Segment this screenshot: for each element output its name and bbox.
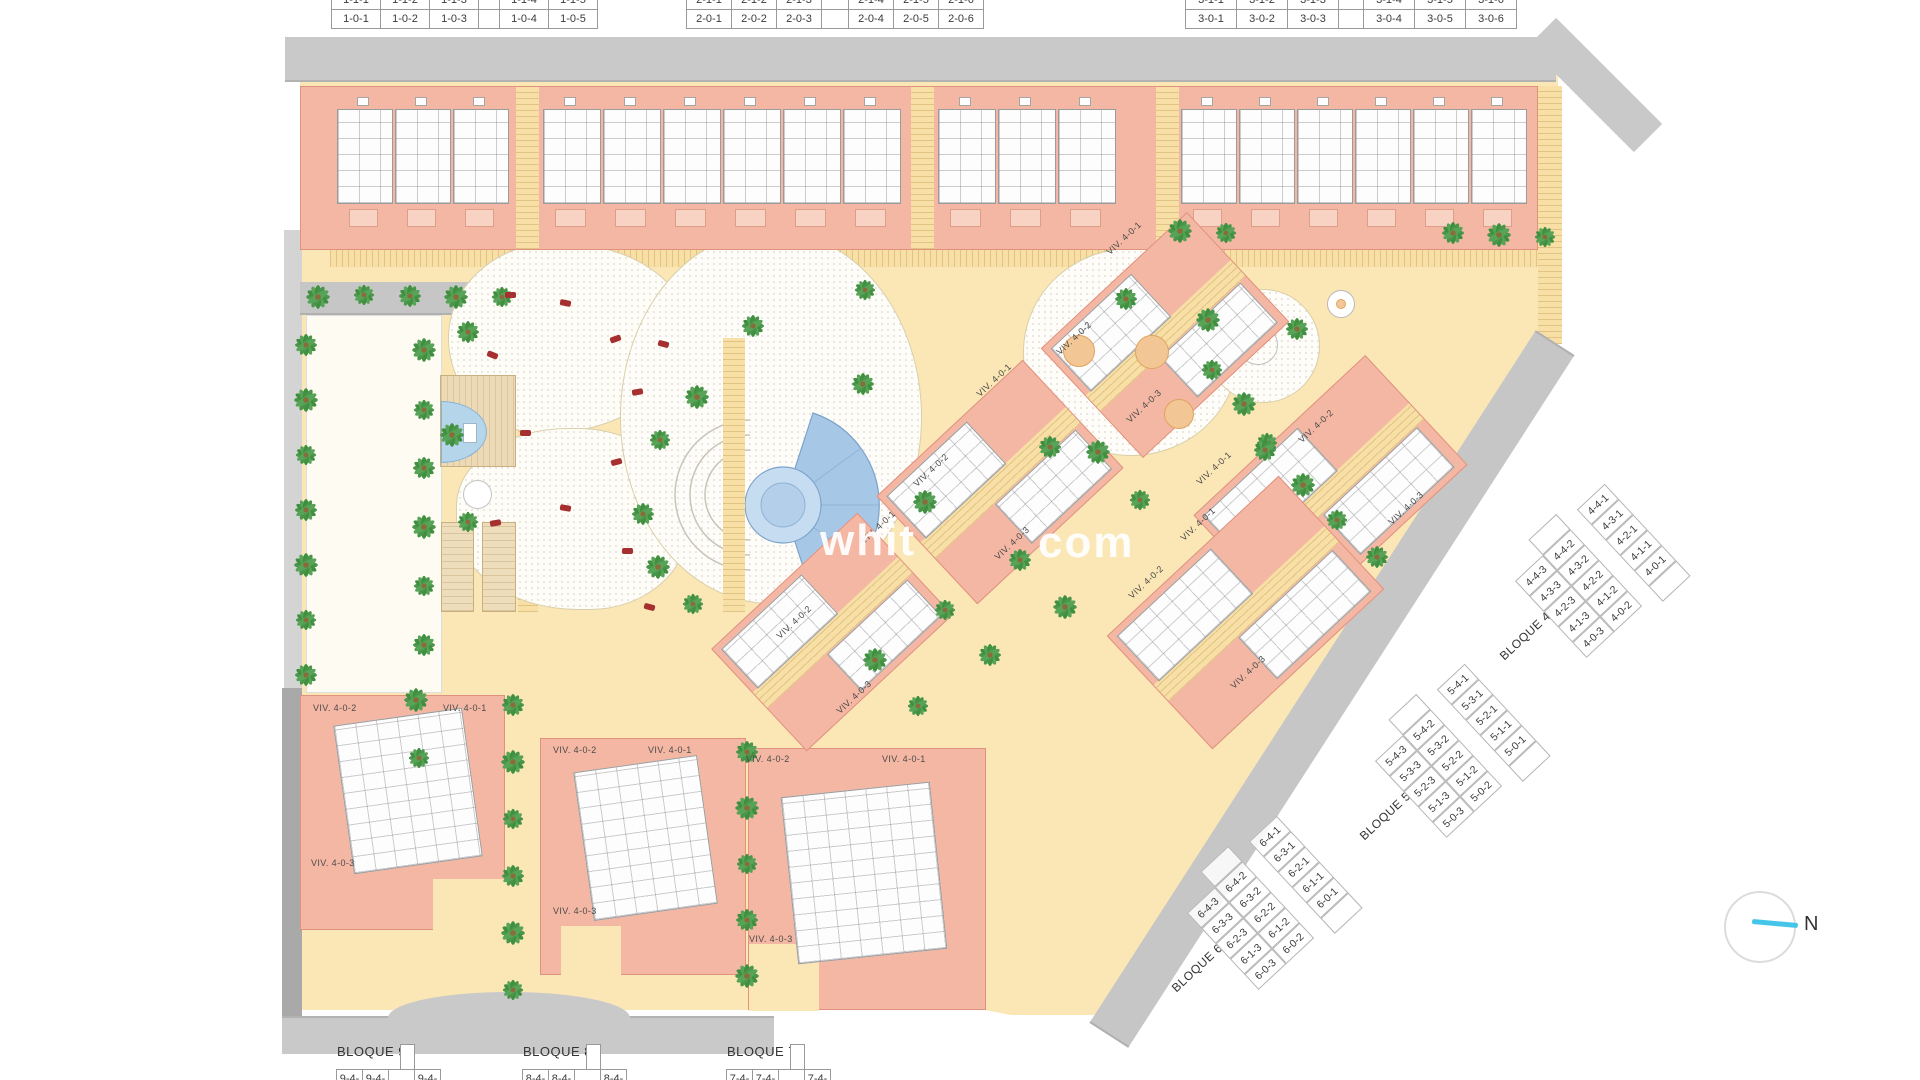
dwelling-label: VIV. 4-0-1 bbox=[443, 703, 487, 713]
unit-number-cell: 1-0-1 bbox=[331, 9, 381, 29]
bloque-diagonal-table: BLOQUE 55-4-35-4-25-4-15-3-35-3-25-3-15-… bbox=[1333, 664, 1568, 895]
table-row: 3-0-13-0-23-0-33-0-43-0-53-0-6 bbox=[1186, 10, 1517, 29]
palm-tree-icon bbox=[648, 428, 672, 452]
unit-terrace bbox=[1070, 209, 1101, 227]
unit-ac-box bbox=[744, 97, 756, 106]
palm-tree-icon bbox=[1533, 225, 1557, 249]
palm-tree-icon bbox=[1037, 434, 1063, 460]
palm-tree-icon bbox=[410, 513, 438, 541]
palm-tree-icon bbox=[402, 686, 430, 714]
courtyard-sand bbox=[433, 879, 506, 931]
unit-ac-box bbox=[959, 97, 971, 106]
palm-tree-icon bbox=[681, 592, 705, 616]
palm-tree-icon bbox=[1200, 358, 1224, 382]
apartment-unit-plan bbox=[333, 708, 483, 875]
table-row: 2-0-12-0-22-0-32-0-42-0-52-0-6 bbox=[687, 10, 984, 29]
palm-tree-icon bbox=[1214, 221, 1238, 245]
unit-terrace bbox=[407, 209, 437, 227]
palm-tree-icon bbox=[861, 646, 889, 674]
palm-tree-icon bbox=[735, 852, 759, 876]
apartment-unit-plan bbox=[395, 109, 451, 204]
unit-terrace bbox=[675, 209, 706, 227]
palm-tree-icon bbox=[292, 551, 320, 579]
dwelling-label: VIV. 4-0-2 bbox=[313, 703, 357, 713]
unit-number-cell: 2-0-3 bbox=[776, 9, 822, 29]
compass-circle bbox=[1724, 891, 1796, 963]
apartment-unit-plan bbox=[1413, 109, 1469, 204]
palm-tree-icon bbox=[1364, 544, 1390, 570]
palm-tree-icon bbox=[644, 553, 672, 581]
palm-tree-icon bbox=[850, 371, 876, 397]
bloque-3-table: 3-1-13-1-23-1-33-1-43-1-53-1-63-0-13-0-2… bbox=[1186, 0, 1517, 29]
bloque-label: BLOQUE 8 bbox=[523, 1044, 592, 1059]
unit-number-cell: 3-0-6 bbox=[1465, 9, 1517, 29]
dwelling-label: VIV. 4-0-1 bbox=[648, 745, 692, 755]
compass-north-label: N bbox=[1804, 913, 1818, 936]
unit-terrace bbox=[1010, 209, 1041, 227]
palm-tree-icon bbox=[304, 283, 332, 311]
palm-tree-icon bbox=[733, 962, 761, 990]
unit-terrace bbox=[349, 209, 379, 227]
palm-tree-icon bbox=[293, 332, 319, 358]
road-top bbox=[285, 37, 1556, 82]
unit-number-cell: 8-4-2 bbox=[548, 1069, 575, 1080]
unit-number-cell: 7-4-1 bbox=[804, 1069, 831, 1080]
palm-tree-icon bbox=[397, 283, 423, 309]
palm-tree-icon bbox=[412, 574, 436, 598]
unit-number-cell: 3-0-5 bbox=[1414, 9, 1466, 29]
sun-lounger-marker bbox=[622, 548, 633, 554]
bloque-key-box bbox=[400, 1044, 415, 1072]
play-equipment-circle bbox=[1135, 335, 1169, 369]
unit-ac-box bbox=[357, 97, 369, 106]
unit-number-cell bbox=[821, 9, 849, 29]
dwelling-label: VIV. 4-0-1 bbox=[882, 754, 926, 764]
palm-tree-icon bbox=[412, 398, 436, 422]
unit-ac-box bbox=[864, 97, 876, 106]
unit-terrace bbox=[465, 209, 495, 227]
palm-tree-icon bbox=[977, 642, 1003, 668]
palm-tree-icon bbox=[293, 662, 319, 688]
apartment-unit-plan bbox=[543, 109, 601, 204]
palm-tree-icon bbox=[294, 443, 318, 467]
palm-tree-icon bbox=[407, 746, 431, 770]
unit-number-cell: 2-0-5 bbox=[893, 9, 939, 29]
table-row: 8-4-38-4-28-4-1 bbox=[523, 1070, 627, 1080]
palm-tree-icon bbox=[1440, 220, 1466, 246]
apartment-unit-plan bbox=[1181, 109, 1237, 204]
unit-terrace bbox=[735, 209, 766, 227]
unit-number-cell: 9-4-3 bbox=[336, 1069, 363, 1080]
bloque-label: BLOQUE 6 bbox=[1169, 941, 1225, 995]
unit-terrace bbox=[950, 209, 981, 227]
bloque-1-table: 1-1-11-1-21-1-31-1-41-1-51-0-11-0-21-0-3… bbox=[332, 0, 598, 29]
path-right-edge bbox=[1538, 86, 1562, 344]
apartment-unit-plan bbox=[783, 109, 841, 204]
unit-number-cell: 3-0-1 bbox=[1185, 9, 1237, 29]
path-between-buildings bbox=[911, 87, 934, 249]
unit-number-cell: 1-0-2 bbox=[380, 9, 430, 29]
palm-tree-icon bbox=[733, 794, 761, 822]
unit-number-cell: 2-0-1 bbox=[686, 9, 732, 29]
unit-ac-box bbox=[1491, 97, 1503, 106]
bloque-label: BLOQUE 7 bbox=[727, 1044, 796, 1059]
palm-tree-icon bbox=[1113, 286, 1139, 312]
dwelling-label: VIV. 4-0-3 bbox=[749, 934, 793, 944]
palm-tree-icon bbox=[411, 455, 437, 481]
palm-tree-icon bbox=[853, 278, 877, 302]
palm-tree-icon bbox=[455, 319, 481, 345]
palm-tree-icon bbox=[499, 919, 527, 947]
apartment-unit-plan bbox=[663, 109, 721, 204]
site-plan-canvas: VIV. 4-0-1VIV. 4-0-2VIV. 4-0-3VIV. 4-0-1… bbox=[0, 0, 1920, 1080]
unit-number-cell: 1-0-3 bbox=[429, 9, 479, 29]
apartment-unit-plan bbox=[843, 109, 901, 204]
bloque-label: BLOQUE 9 bbox=[337, 1044, 406, 1059]
bloque-label: BLOQUE 5 bbox=[1357, 789, 1413, 843]
building-block-bottom bbox=[540, 738, 746, 975]
unit-terrace bbox=[555, 209, 586, 227]
palm-tree-icon bbox=[456, 510, 480, 534]
apartment-unit-plan bbox=[723, 109, 781, 204]
left-road-lower bbox=[282, 688, 302, 1018]
apartment-unit-plan bbox=[1239, 109, 1295, 204]
palm-tree-icon bbox=[499, 748, 527, 776]
unit-ac-box bbox=[1079, 97, 1091, 106]
palm-tree-icon bbox=[352, 283, 376, 307]
palm-tree-icon bbox=[906, 694, 930, 718]
unit-ac-box bbox=[1259, 97, 1271, 106]
palm-tree-icon bbox=[630, 501, 656, 527]
unit-number-cell: 9-4-2 bbox=[362, 1069, 389, 1080]
unit-number-cell: 8-4-3 bbox=[522, 1069, 549, 1080]
table-row: 1-0-11-0-21-0-31-0-41-0-5 bbox=[332, 10, 598, 29]
palm-tree-icon bbox=[1128, 488, 1152, 512]
palm-tree-icon bbox=[740, 313, 766, 339]
courtyard-sand bbox=[561, 926, 621, 976]
unit-ac-box bbox=[564, 97, 576, 106]
table-row: 9-4-39-4-29-4-1 bbox=[337, 1070, 441, 1080]
bloque-label: BLOQUE 4 bbox=[1497, 609, 1553, 663]
unit-number-cell: 7-4-2 bbox=[752, 1069, 779, 1080]
apartment-unit-plan bbox=[573, 755, 718, 921]
unit-number-cell: 1-0-4 bbox=[499, 9, 549, 29]
unit-ac-box bbox=[1019, 97, 1031, 106]
palm-tree-icon bbox=[292, 386, 320, 414]
unit-ac-box bbox=[415, 97, 427, 106]
palm-tree-icon bbox=[294, 608, 318, 632]
palm-tree-icon bbox=[500, 692, 526, 718]
palm-tree-icon bbox=[1194, 306, 1222, 334]
unit-ac-box bbox=[1375, 97, 1387, 106]
unit-number-cell: 2-0-2 bbox=[731, 9, 777, 29]
apartment-unit-plan bbox=[453, 109, 509, 204]
palm-tree-icon bbox=[911, 488, 939, 516]
apartment-unit-plan bbox=[998, 109, 1056, 204]
path-through-plaza bbox=[723, 338, 745, 612]
palm-tree-icon bbox=[410, 336, 438, 364]
apartment-unit-plan bbox=[1355, 109, 1411, 204]
dwelling-label: VIV. 4-0-2 bbox=[553, 745, 597, 755]
unit-number-cell: 3-0-4 bbox=[1363, 9, 1415, 29]
unit-number-cell: 2-0-4 bbox=[848, 9, 894, 29]
unit-ac-box bbox=[1317, 97, 1329, 106]
unit-number-cell: 2-0-6 bbox=[938, 9, 984, 29]
dwelling-label: VIV. 4-0-3 bbox=[311, 858, 355, 868]
palm-tree-icon bbox=[438, 421, 466, 449]
apartment-unit-plan bbox=[337, 109, 393, 204]
palm-tree-icon bbox=[411, 632, 437, 658]
unit-terrace bbox=[855, 209, 886, 227]
unit-number-cell: 7-4-3 bbox=[726, 1069, 753, 1080]
building-block-bottom bbox=[300, 695, 505, 930]
bloque-2-table: 2-1-12-1-22-1-32-1-42-1-52-1-62-0-12-0-2… bbox=[687, 0, 984, 29]
unit-number-cell: 3-0-2 bbox=[1236, 9, 1288, 29]
unit-terrace bbox=[795, 209, 826, 227]
bloque-diagonal-table: BLOQUE 44-4-34-4-24-4-14-3-34-3-24-3-14-… bbox=[1473, 484, 1708, 715]
sun-lounger-marker bbox=[520, 430, 531, 436]
unit-ac-box bbox=[684, 97, 696, 106]
unit-number-cell: 9-4-1 bbox=[414, 1069, 441, 1080]
dwelling-label: VIV. 4-0-3 bbox=[553, 906, 597, 916]
apartment-unit-plan bbox=[1471, 109, 1527, 204]
apartment-unit-plan bbox=[1297, 109, 1353, 204]
palm-tree-icon bbox=[442, 283, 470, 311]
watermark-right: com bbox=[1038, 518, 1134, 568]
building-block-bottom bbox=[748, 748, 986, 1010]
table-row: 7-4-37-4-27-4-1 bbox=[727, 1070, 831, 1080]
palm-tree-icon bbox=[501, 978, 525, 1002]
apartment-unit-plan bbox=[1058, 109, 1116, 204]
unit-number-cell: 3-0-3 bbox=[1287, 9, 1339, 29]
palm-tree-icon bbox=[734, 907, 760, 933]
bloque-key-box bbox=[790, 1044, 805, 1072]
fountain-center bbox=[1336, 299, 1346, 309]
unit-number-cell bbox=[778, 1069, 805, 1080]
unit-terrace bbox=[1309, 209, 1339, 227]
unit-ac-box bbox=[804, 97, 816, 106]
palm-tree-icon bbox=[1084, 438, 1112, 466]
unit-number-cell: 1-0-5 bbox=[548, 9, 598, 29]
unit-terrace bbox=[1251, 209, 1281, 227]
palm-tree-icon bbox=[933, 598, 957, 622]
unit-number-cell: 8-4-1 bbox=[600, 1069, 627, 1080]
palm-tree-icon bbox=[501, 807, 525, 831]
palm-tree-icon bbox=[1284, 316, 1310, 342]
unit-number-cell bbox=[388, 1069, 415, 1080]
palm-tree-icon bbox=[1289, 471, 1317, 499]
unit-number-cell bbox=[574, 1069, 601, 1080]
play-equipment-circle bbox=[1164, 399, 1194, 429]
palm-tree-icon bbox=[1485, 221, 1513, 249]
apartment-unit-plan bbox=[938, 109, 996, 204]
palm-tree-icon bbox=[1325, 508, 1349, 532]
dwelling-label: VIV. 4-0-2 bbox=[746, 754, 790, 764]
unit-terrace bbox=[1367, 209, 1397, 227]
unit-ac-box bbox=[1433, 97, 1445, 106]
palm-tree-icon bbox=[1051, 593, 1079, 621]
sun-lounger-marker bbox=[505, 292, 516, 298]
pergola-2 bbox=[482, 522, 516, 612]
palm-tree-icon bbox=[1252, 437, 1278, 463]
palm-tree-icon bbox=[1230, 390, 1258, 418]
palm-tree-icon bbox=[500, 863, 526, 889]
garden-circle-small bbox=[463, 480, 492, 509]
unit-ac-box bbox=[1201, 97, 1213, 106]
apartment-unit-plan bbox=[781, 782, 948, 965]
palm-tree-icon bbox=[1166, 217, 1194, 245]
palm-tree-icon bbox=[293, 497, 319, 523]
apartment-unit-plan bbox=[603, 109, 661, 204]
watermark-left: whit bbox=[820, 516, 916, 566]
pergola-1 bbox=[441, 522, 474, 612]
path-between-buildings bbox=[516, 87, 539, 249]
unit-number-cell bbox=[1338, 9, 1364, 29]
unit-terrace bbox=[615, 209, 646, 227]
building-block-top-band bbox=[300, 86, 1538, 250]
unit-number-cell bbox=[478, 9, 500, 29]
unit-ac-box bbox=[624, 97, 636, 106]
bloque-key-box bbox=[586, 1044, 601, 1072]
unit-ac-box bbox=[473, 97, 485, 106]
palm-tree-icon bbox=[683, 383, 711, 411]
